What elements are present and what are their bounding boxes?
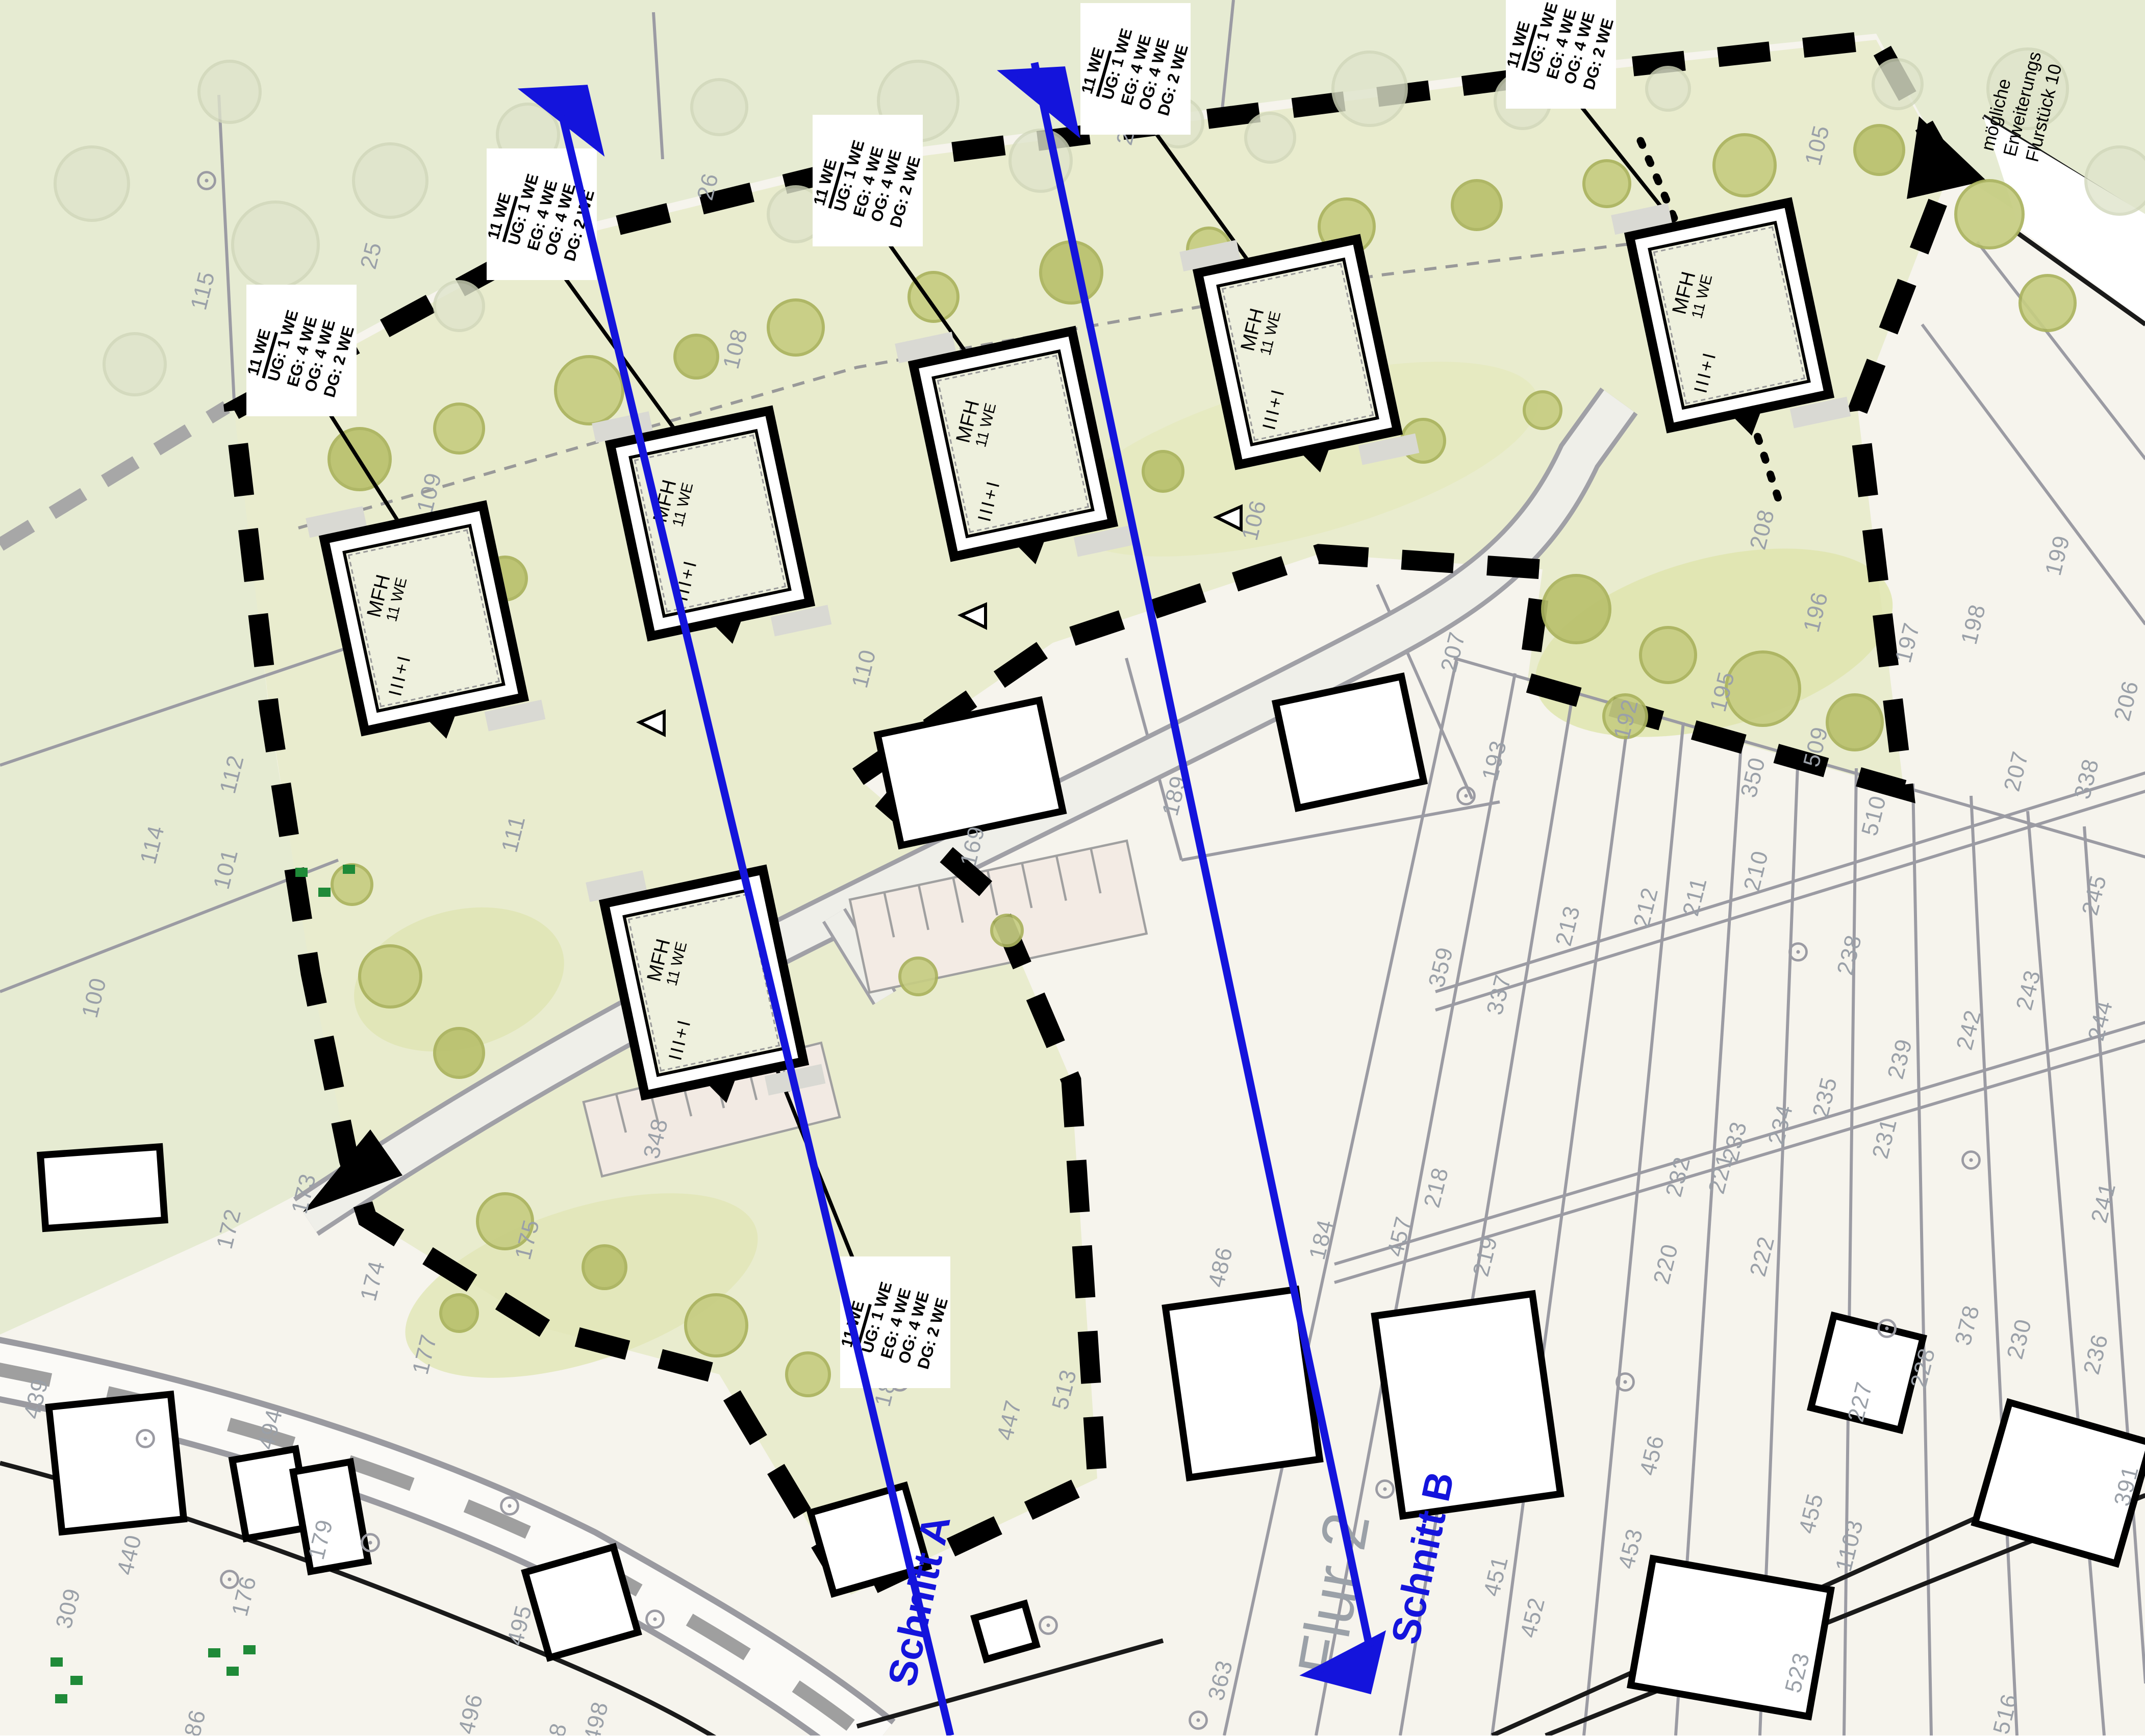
parcel-number: 212 [1629,885,1664,930]
parcel-number: 109 [413,470,448,516]
parcel-number: 219 [1469,1234,1504,1279]
parcel-number: 179 [304,1517,339,1563]
building-label: MFH11 WE [363,570,412,623]
parcel-number: 115 [186,269,221,313]
parcel-number: 213 [1551,903,1586,949]
building-outline: MFH11 WEIII+I [1624,197,1834,433]
parcel-number: 111 [497,813,531,855]
parcel-number: 363 [1204,1657,1239,1703]
building-label: MFH11 WE [643,935,692,988]
building-label: MFH11 WE [1237,304,1285,357]
parcel-number: 193 [1478,738,1513,784]
building-outline: MFH11 WEIII+I [605,405,815,641]
parcel-number: 244 [2084,998,2119,1044]
building-outline: MFH11 WEIII+I [908,325,1118,562]
parcel-number: 496 [454,1691,489,1735]
parcel-number: 452 [1516,1595,1551,1641]
parcel-number: 513 [1048,1367,1083,1413]
building-storeys-label: III+I [664,1015,695,1062]
parcel-number: 455 [1795,1491,1830,1537]
parcel-number: 523 [1781,1650,1816,1696]
planned-building-footprint: MFH11 WEIII+I [1624,197,1834,433]
building-label: MFH11 WE [649,475,698,529]
building-storeys-label: III+I [1258,385,1289,431]
planned-building-footprint: MFH11 WEIII+I [319,500,529,736]
parcel-number: 509 [1799,724,1834,770]
parcel-number: 172 [212,1206,247,1252]
parcel-number: 439 [19,1376,55,1422]
building-interior: MFH11 WEIII+I [931,349,1095,539]
parcel-number: 239 [1883,1036,1919,1082]
parcel-number: 486 [1204,1244,1239,1290]
parcel-number: 242 [1952,1007,1987,1053]
parcel-number: 451 [1479,1553,1515,1599]
parcel-number: 243 [2012,967,2047,1013]
building-outline: MFH11 WEIII+I [319,500,529,736]
parcel-number: 232 [1661,1154,1697,1200]
parcel-number: 498 [579,1699,615,1735]
parcel-number: 236 [2079,1331,2114,1377]
parcel-number: 211 [1678,875,1713,919]
building-interior: MFH11 WEIII+I [622,888,786,1077]
parcel-number: 206 [2110,678,2145,724]
parcel-number: 457 [1383,1214,1418,1260]
unit-annotation-box: 11 WEUG: 1 WEEG: 4 WEOG: 4 WEDG: 2 WE [840,1256,950,1388]
building-storeys-label: III+I [384,651,415,697]
parcel-number: 328 [538,1720,573,1735]
parcel-number: 1103 [1831,1517,1869,1574]
parcel-number: 112 [215,752,250,796]
building-interior: MFH11 WEIII+I [342,524,506,713]
site-plan-canvas: mögliche Erweiterungs Flurstück 10 Flur … [0,0,2145,1735]
building-label: MFH11 WE [952,396,1001,449]
parcel-number: 221 [1704,1151,1739,1197]
parcel-number: 447 [993,1397,1028,1443]
parcel-number: 86 [180,1707,212,1735]
parcel-number: 177 [408,1331,443,1377]
building-outline: MFH11 WEIII+I [599,864,809,1100]
parcel-number: 456 [1635,1432,1671,1478]
unit-annotation-box: 11 WEUG: 1 WEEG: 4 WEOG: 4 WEDG: 2 WE [1506,0,1616,109]
parcel-number: 495 [503,1602,538,1648]
parcel-number: 197 [1891,620,1926,666]
label-layer: mögliche Erweiterungs Flurstück 10 Flur … [0,0,2145,1735]
parcel-number: 231 [1868,1116,1903,1162]
parcel-number: 516 [1989,1691,2024,1735]
parcel-number: 234 [1764,1102,1799,1148]
parcel-number: 453 [1614,1526,1649,1572]
planned-building-footprint: MFH11 WEIII+I [1193,234,1403,470]
parcel-number: 207 [1436,629,1472,675]
parcel-number: 218 [1420,1165,1455,1211]
parcel-number: 169 [956,823,991,869]
parcel-number: 338 [2070,756,2105,802]
parcel-number: 348 [639,1116,674,1162]
building-interior: MFH11 WEIII+I [1648,221,1811,410]
planned-building-footprint: MFH11 WEIII+I [908,325,1118,562]
parcel-number: 222 [1746,1234,1781,1279]
parcel-number: 391 [2110,1463,2145,1509]
building-interior: MFH11 WEIII+I [628,429,792,618]
parcel-number: 494 [254,1406,289,1452]
unit-annotation-box: 11 WEUG: 1 WEEG: 4 WEOG: 4 WEDG: 2 WE [1080,3,1191,135]
parcel-number: 235 [1808,1074,1844,1120]
building-interior: MFH11 WEIII+I [1216,258,1379,447]
parcel-number: 184 [1305,1217,1340,1263]
parcel-number: 175 [511,1217,546,1263]
parcel-number: 230 [2003,1316,2038,1362]
parcel-number: 114 [136,823,170,867]
parcel-number: 228 [1906,1345,1941,1391]
parcel-number: 199 [2041,533,2076,578]
parcel-number: 198 [1957,601,1992,647]
building-storeys-label: III+I [670,556,701,602]
building-storeys-label: III+I [1689,348,1721,394]
parcel-number: 173 [287,1171,322,1217]
parcel-number: 26 [693,170,724,203]
parcel-number: 208 [1746,507,1781,552]
building-outline: MFH11 WEIII+I [1193,234,1403,470]
planned-building-footprint: MFH11 WEIII+I [599,864,809,1100]
extension-note: mögliche Erweiterungs Flurstück 10 [1977,44,2070,165]
unit-annotation-box: 11 WEUG: 1 WEEG: 4 WEOG: 4 WEDG: 2 WE [246,285,357,416]
flur-label: Flur 2 [1284,1507,1385,1682]
parcel-number: 238 [1833,932,1868,978]
parcel-number: 25 [356,239,388,272]
parcel-number: 192 [1609,696,1645,742]
parcel-number: 100 [78,975,113,1021]
parcel-number: 108 [719,326,754,372]
parcel-number: 195 [1706,669,1741,715]
parcel-number: 378 [1951,1302,1986,1348]
parcel-number: 245 [2078,872,2113,918]
parcel-number: 101 [209,846,244,892]
parcel-number: 189 [1158,773,1193,819]
parcel-number: 309 [52,1586,87,1631]
parcel-number: 106 [1238,497,1273,543]
parcel-number: 210 [1739,848,1775,894]
parcel-number: 359 [1424,944,1459,990]
building-label: MFH11 WE [1669,267,1717,320]
parcel-number: 337 [1482,972,1518,1018]
parcel-number: 440 [113,1532,148,1578]
parcel-number: 510 [1857,793,1892,839]
unit-annotation-box: 11 WEUG: 1 WEEG: 4 WEOG: 4 WEDG: 2 WE [487,148,597,280]
unit-annotation-box: 11 WEUG: 1 WEEG: 4 WEOG: 4 WEDG: 2 WE [813,115,923,246]
parcel-number: 241 [2087,1180,2122,1226]
parcel-number: 105 [1801,122,1836,168]
parcel-number: 207 [2000,748,2035,794]
building-storeys-label: III+I [973,476,1004,523]
parcel-number: 350 [1736,754,1772,800]
parcel-number: 110 [847,647,882,691]
parcel-number: 220 [1649,1241,1684,1287]
parcel-number: 174 [356,1258,391,1304]
parcel-number: 176 [228,1573,263,1619]
parcel-number: 196 [1799,589,1834,635]
planned-building-footprint: MFH11 WEIII+I [605,405,815,641]
parcel-number: 227 [1844,1379,1879,1425]
